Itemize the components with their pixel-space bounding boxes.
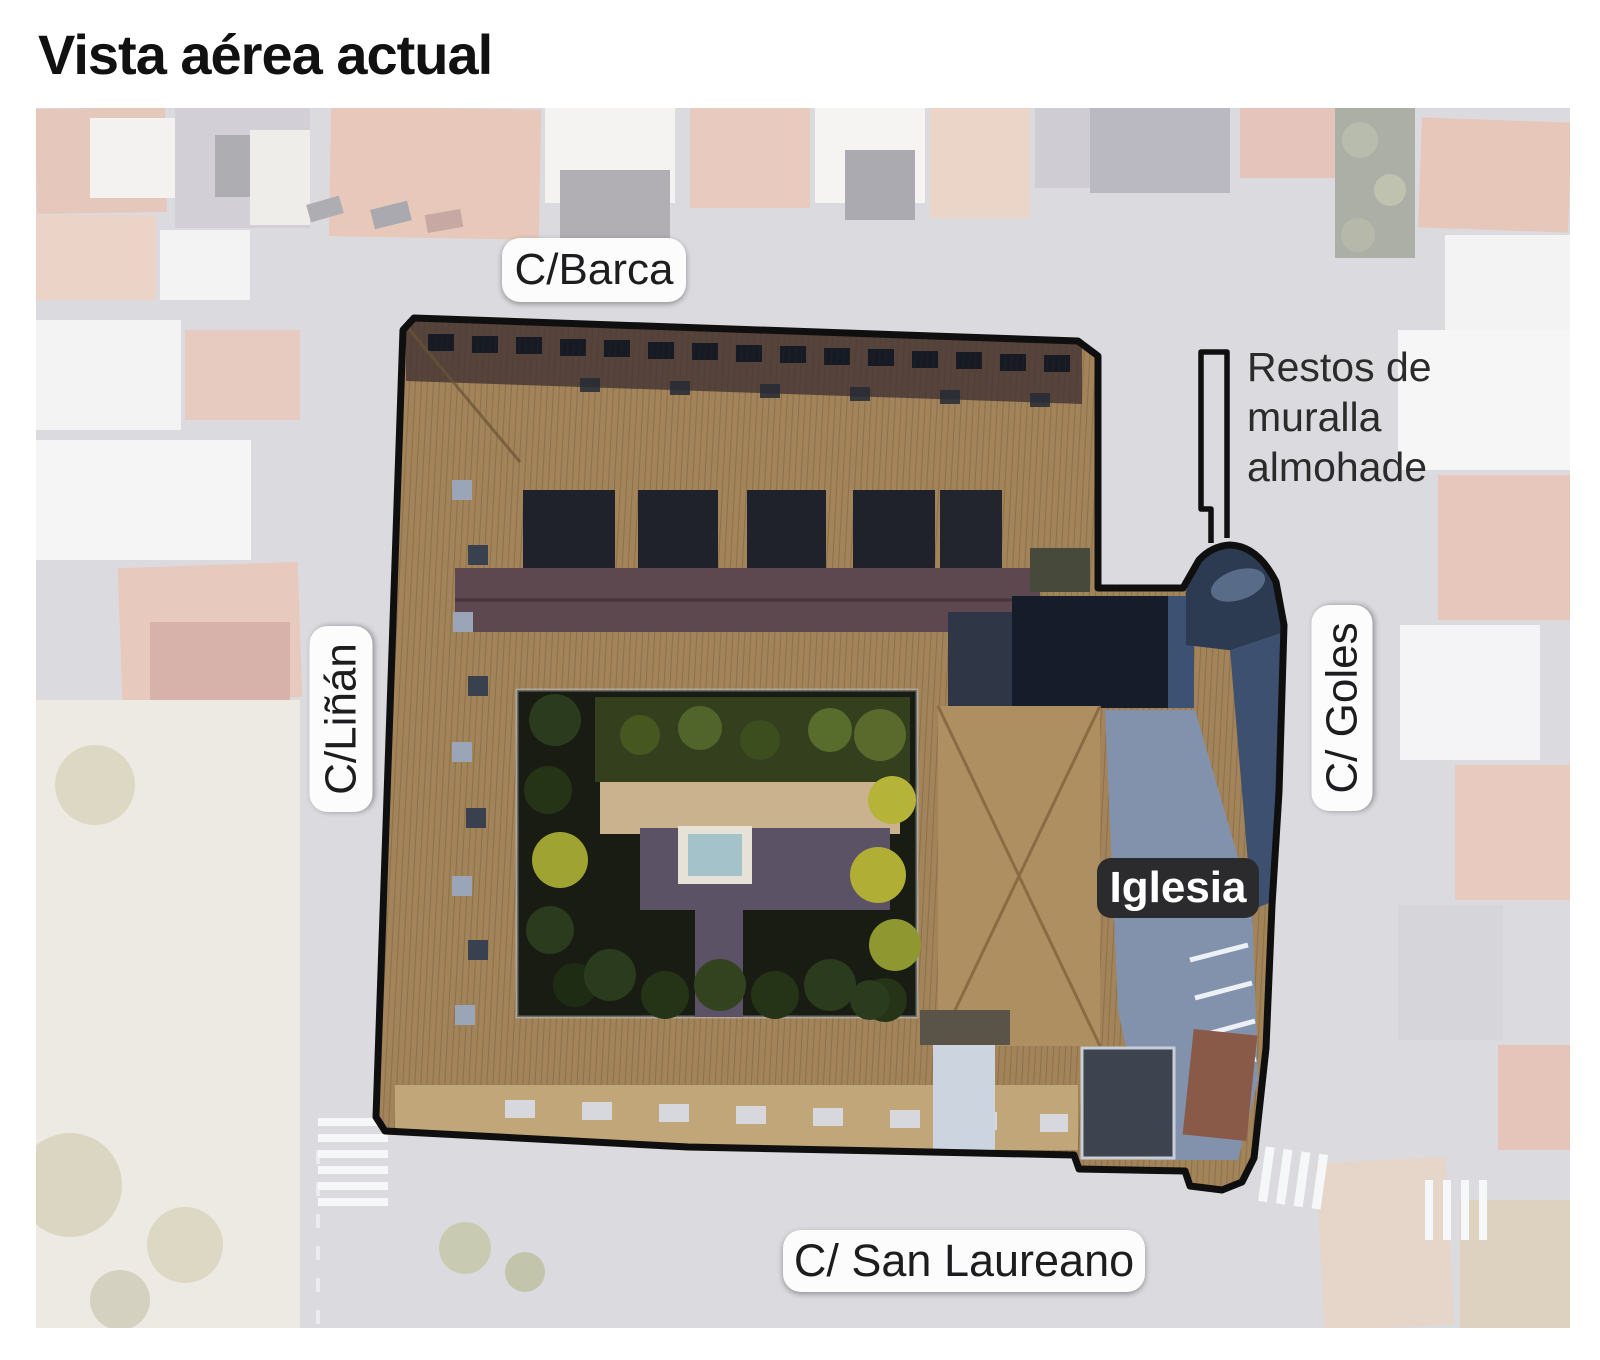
street-label-goles: C/ Goles (1312, 605, 1373, 811)
infographic: Vista aérea actual (0, 0, 1600, 1360)
aerial-map: C/Barca C/Liñán C/ Goles C/ San Laureano… (0, 0, 1600, 1360)
street-label-linan: C/Liñán (310, 626, 373, 812)
building-label-iglesia: Iglesia (1097, 858, 1259, 918)
street-label-san-laureano: C/ San Laureano (783, 1230, 1145, 1292)
central-courtyard (517, 690, 921, 1022)
annotation-muralla: Restos de muralla almohade (1247, 342, 1467, 492)
street-label-barca: C/Barca (502, 238, 686, 302)
